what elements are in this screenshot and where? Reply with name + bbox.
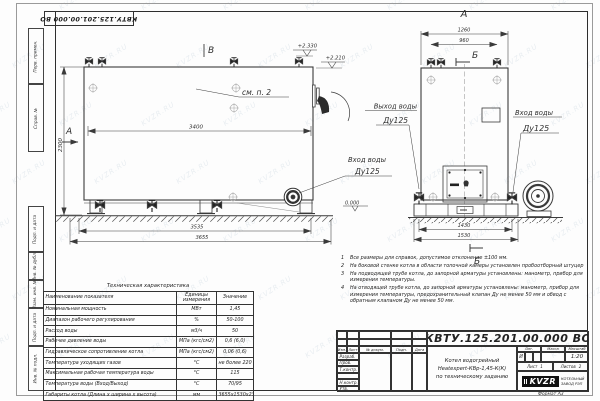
inspection-hatch <box>482 108 500 122</box>
svg-text:+2.330: +2.330 <box>298 44 318 50</box>
kvzr-logo: KVZR КОТЕЛЬНЫЙ ЗАВОД РЭП <box>522 376 585 387</box>
technical-characteristics-table: Наименование показателя Единицы измерени… <box>43 291 254 401</box>
front-view-title: А <box>460 9 468 20</box>
table-row: Габариты котла (Длина х ширина х высота)… <box>44 390 254 401</box>
col-list: Лист <box>347 346 359 353</box>
mass-value <box>541 352 565 362</box>
table-row: Диапазон рабочего регулирования%50-100 <box>44 315 254 326</box>
svg-text:1260: 1260 <box>458 28 471 34</box>
svg-text:1530: 1530 <box>458 233 471 239</box>
svg-text:960: 960 <box>459 38 469 44</box>
svg-text:Ду125: Ду125 <box>354 167 380 176</box>
title-block: Изм. Лист № докум. Подп. Дата Разраб. Пр… <box>336 330 588 391</box>
company-cell: KVZR КОТЕЛЬНЫЙ ЗАВОД РЭП <box>517 371 589 392</box>
company-name: КОТЕЛЬНЫЙ ЗАВОД РЭП <box>561 377 584 386</box>
document-designation: КВТУ.125.201.00.000 ВО <box>427 331 589 346</box>
table-row: Температура уходящих газов°Сне более 220 <box>44 358 254 369</box>
svg-text:0.000: 0.000 <box>345 201 359 207</box>
row-utv: Утв. <box>337 386 359 393</box>
tech-table-title: Техническая характеристика <box>43 283 253 289</box>
dimension-1260: 1260 <box>421 28 508 66</box>
table-row: Рабочее давление водыМПа (кгс/см2)0,6 (6… <box>44 337 254 348</box>
section-marker-A: А <box>62 127 78 142</box>
table-row: Максимальная рабочая температура воды°С1… <box>44 369 254 380</box>
elevation-2330: +2.330 <box>293 44 318 57</box>
notes-list: 1Все размеры для справок, допустимое отк… <box>341 255 589 306</box>
water-inlet-flange <box>284 188 302 206</box>
view-marker-B: В <box>204 44 214 57</box>
note-item: 1Все размеры для справок, допустимое отк… <box>341 255 589 261</box>
burner-fan <box>523 181 553 217</box>
ground-line-main <box>55 216 333 222</box>
format-label: Формат А3 <box>538 392 564 397</box>
svg-text:Ду125: Ду125 <box>382 116 408 125</box>
svg-text:+2.210: +2.210 <box>326 56 346 62</box>
kvzr-logo-text: KVZR <box>522 376 559 387</box>
table-row: Температура воды (Вход/Выход)°С70/95 <box>44 379 254 390</box>
note-item: 4На отводящей трубе котла, до запорной а… <box>341 285 589 304</box>
rear-outlet-elbow <box>313 85 350 121</box>
svg-text:Б: Б <box>472 51 478 61</box>
svg-text:см. п. 2: см. п. 2 <box>242 88 271 97</box>
dimension-960: 960 <box>431 38 497 45</box>
see-note-callout: см. п. 2 <box>196 88 289 97</box>
document-name: Котел водогрейный Heatexpert-КВр-1,45-К(… <box>427 346 517 392</box>
table-row: Расход водым3/ч50 <box>44 326 254 337</box>
sheets-cell: Листов2 <box>553 362 589 371</box>
svg-text:2300: 2300 <box>58 138 64 152</box>
base-frame <box>414 204 518 216</box>
position-mark <box>231 83 241 93</box>
table-header-row: Наименование показателя Единицы измерени… <box>44 292 254 305</box>
svg-text:Вход воды: Вход воды <box>348 156 387 164</box>
main-view: 3400 2300 3535 3655 В А <box>55 44 392 245</box>
drain-valves <box>96 200 222 212</box>
table-row: Номинальная мощностьМВт1,45 <box>44 305 254 316</box>
section-marker-B-top: Б <box>456 51 478 66</box>
col-data: Дата <box>412 346 427 353</box>
elevation-zero: 0.000 <box>343 201 368 212</box>
dimension-2300: 2300 <box>58 67 84 215</box>
svg-text:3655: 3655 <box>196 235 209 241</box>
svg-text:Вход воды: Вход воды <box>515 109 554 117</box>
position-mark <box>229 103 239 113</box>
svg-text:Ду125: Ду125 <box>522 124 549 133</box>
col-podp: Подп. <box>391 346 412 353</box>
front-view: А <box>365 9 563 267</box>
air-vent-valves <box>85 58 302 67</box>
ground-line-front <box>408 218 563 224</box>
col-doc: № докум. <box>359 346 391 353</box>
svg-text:3400: 3400 <box>189 125 203 131</box>
svg-text:В: В <box>208 46 214 56</box>
table-row: Гидравлическое сопротивление котлаМПа (к… <box>44 347 254 358</box>
boiler-body-side <box>84 67 313 200</box>
svg-text:Выход воды: Выход воды <box>374 103 418 111</box>
scale-value: 1:20 <box>565 352 589 362</box>
col-izm: Изм. <box>337 346 347 353</box>
dimension-3400: 3400 <box>88 125 311 137</box>
elevation-2210: +2.210 <box>316 56 346 69</box>
svg-text:3535: 3535 <box>191 225 204 231</box>
svg-text:1430: 1430 <box>458 223 471 229</box>
svg-text:А: А <box>65 127 72 137</box>
boiler-legs <box>87 200 315 214</box>
note-item: 2На боковой стенке котла в области топоч… <box>341 263 589 269</box>
inlet-label-front: Вход воды Ду125 <box>513 109 562 192</box>
position-mark <box>88 83 98 93</box>
lit-value: И <box>517 352 525 362</box>
note-item: 3На подводящей трубе котла, до запорной … <box>341 271 589 284</box>
sheet-cell: Лист1 <box>517 362 553 371</box>
furnace-door <box>443 166 487 202</box>
